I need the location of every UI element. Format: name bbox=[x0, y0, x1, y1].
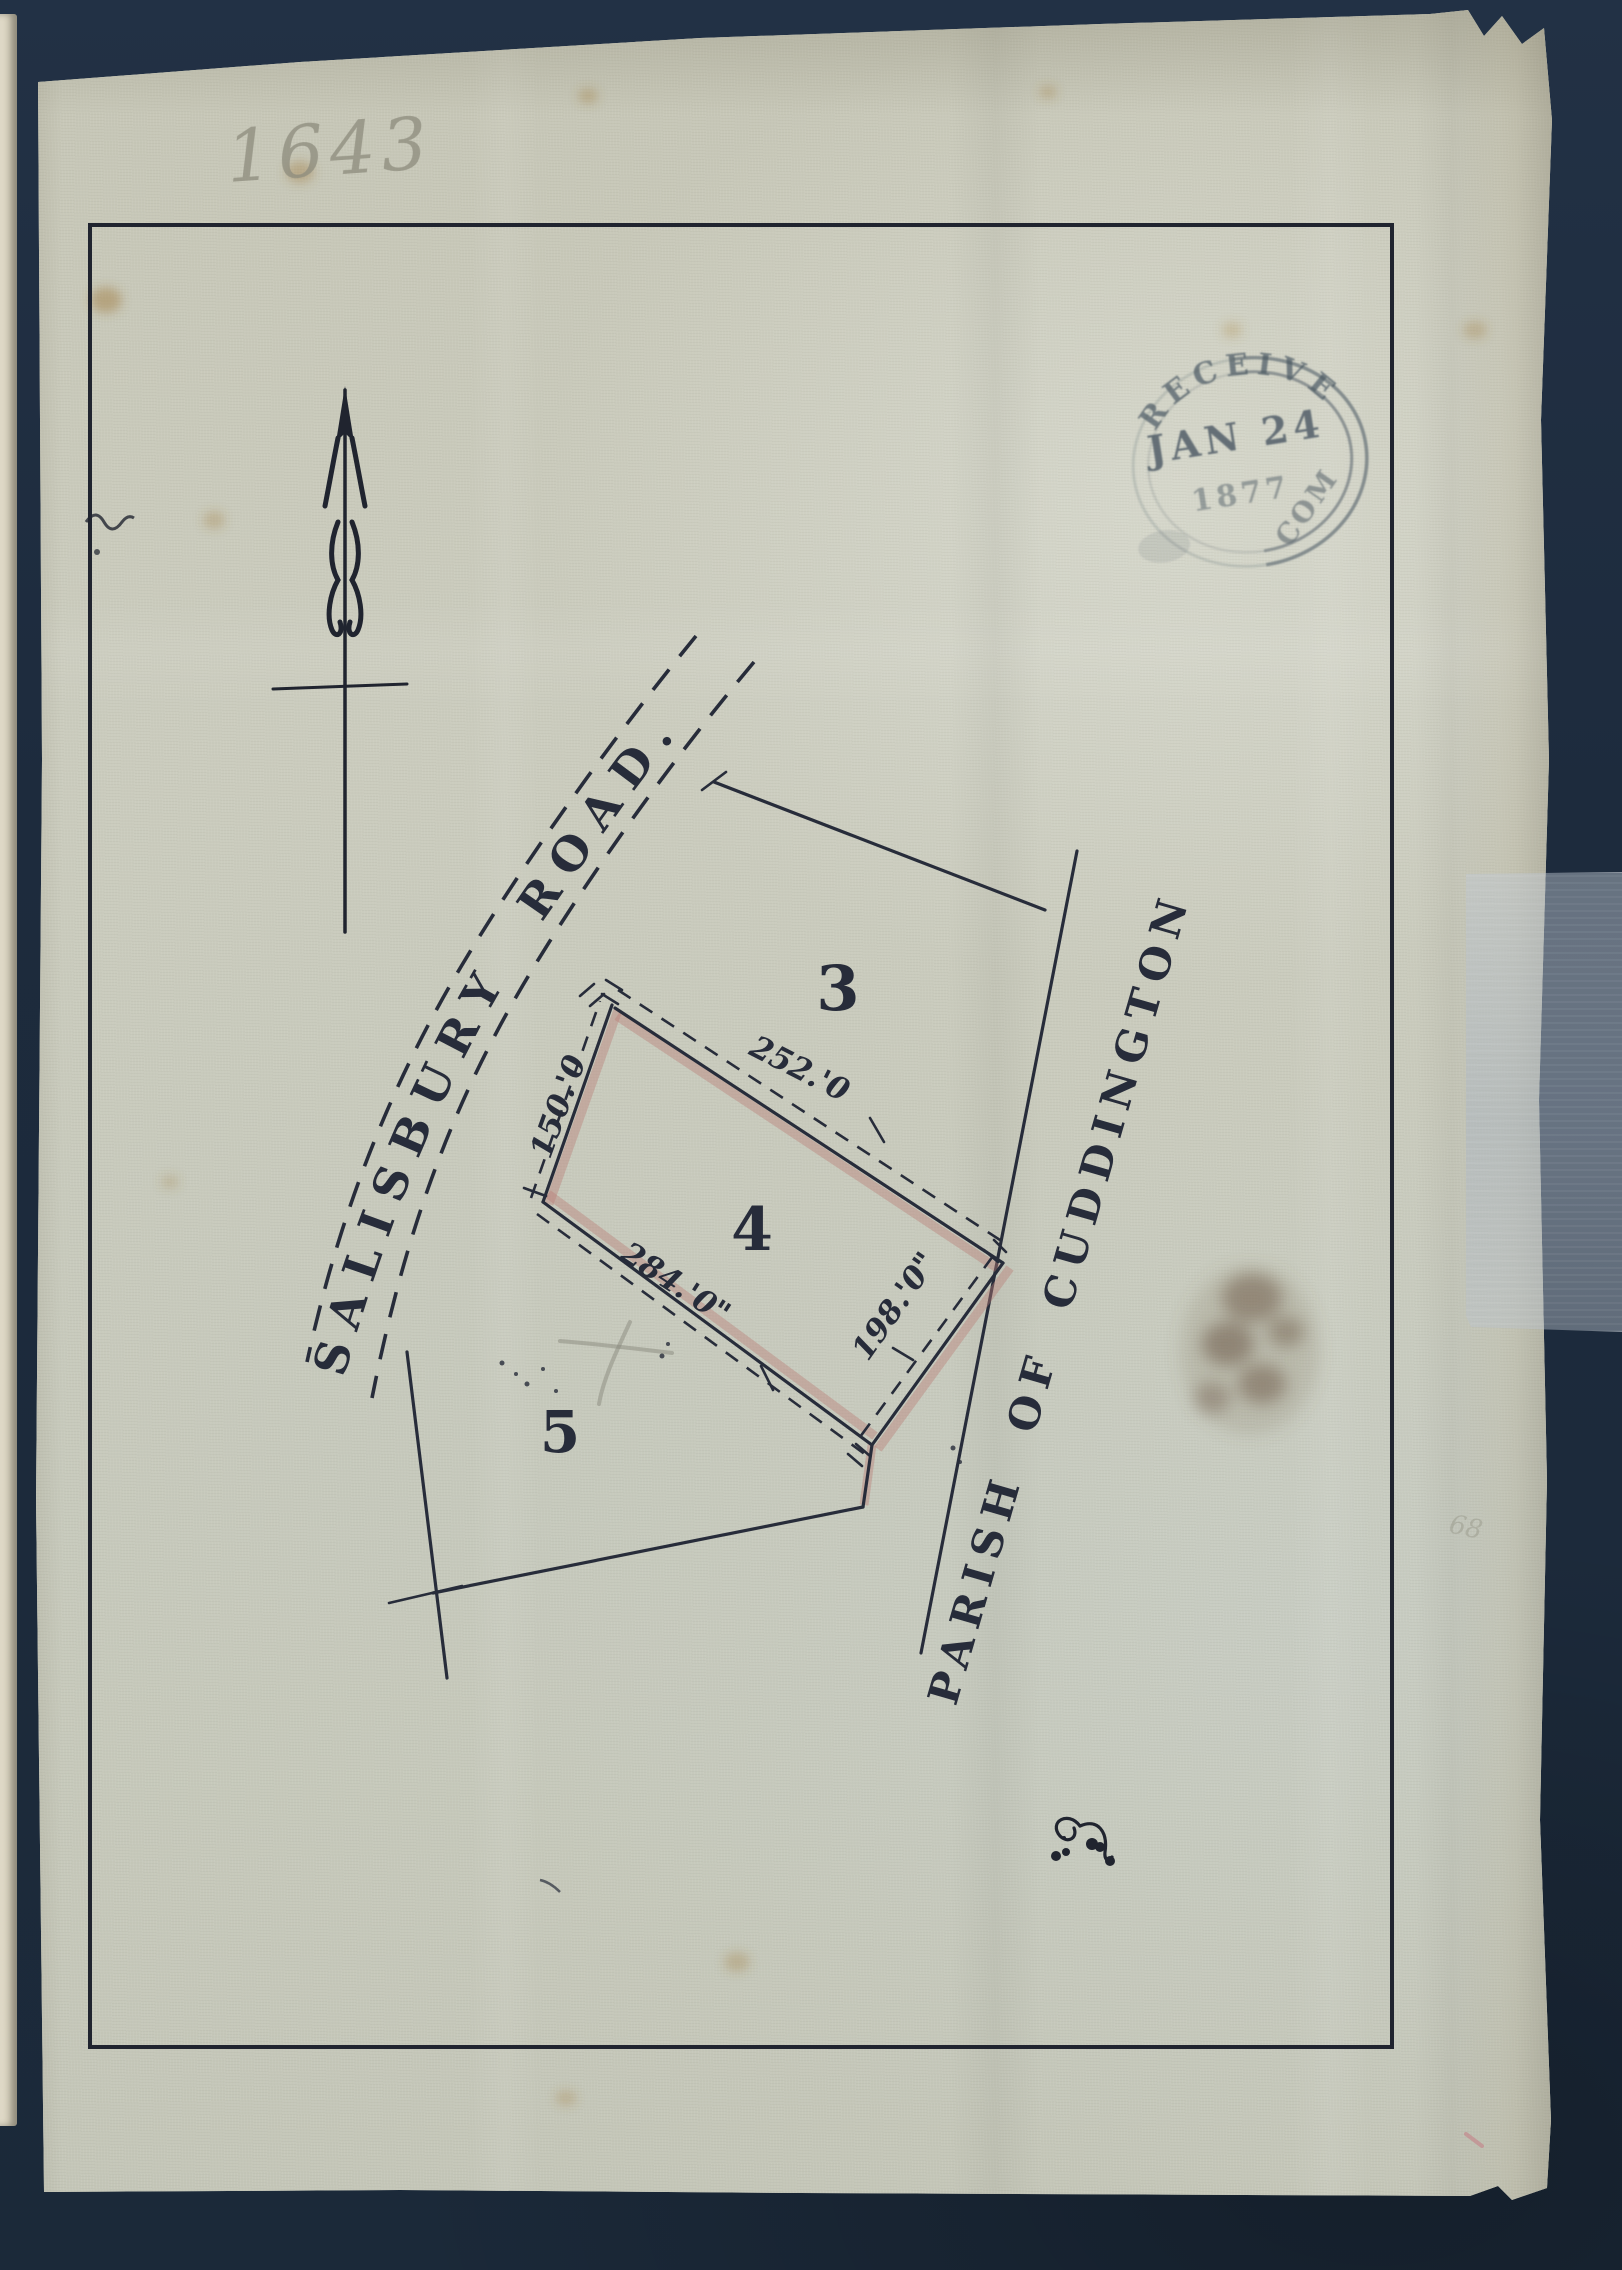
stamp-arc-top: RECEIVED bbox=[0, 0, 1350, 623]
parish-label-text: PARISH OF CUDDINGTON bbox=[918, 885, 1200, 1710]
pencil-margin-number: 68 bbox=[1447, 1510, 1486, 1546]
parish-label: PARISH OF CUDDINGTON bbox=[918, 885, 1200, 1710]
parish-boundary: PARISH OF CUDDINGTON bbox=[918, 851, 1200, 1710]
plot3-north-line bbox=[714, 782, 1045, 910]
stamp-year: 1877 bbox=[1189, 469, 1293, 519]
archival-scan: { "document": { "pencil_number": "1643",… bbox=[0, 0, 1622, 2270]
brown-blot-stain bbox=[1180, 1265, 1320, 1435]
road-label-text: SALISBURY ROAD. bbox=[302, 699, 692, 1381]
archival-tape-strip bbox=[1466, 872, 1622, 1332]
ink-blot bbox=[1051, 1818, 1115, 1866]
plot4-number: 4 bbox=[731, 1195, 773, 1265]
foxing-stains bbox=[90, 85, 1487, 2106]
pencil-archive-number: 1643 bbox=[223, 101, 436, 199]
plot5-south-line bbox=[433, 1507, 863, 1593]
plot34-divider-line bbox=[615, 1008, 1003, 1263]
plot3-number: 3 bbox=[816, 952, 859, 1025]
plot5-west-line bbox=[407, 1352, 447, 1678]
road-label: SALISBURY ROAD. bbox=[302, 699, 692, 1381]
survey-plan-drawing: SALISBURY ROAD. PARISH OF CUDDINGTON bbox=[0, 0, 1622, 2270]
dimension-north: 252.'0 bbox=[743, 1028, 856, 1109]
received-stamp: RECEIVED JAN 24 1877 COM bbox=[0, 0, 1382, 763]
north-arrow bbox=[273, 386, 407, 932]
stamp-arc-top-text: RECEIVED bbox=[0, 0, 1350, 623]
plot5-number: 5 bbox=[540, 1398, 580, 1466]
plot-boundaries bbox=[389, 772, 1045, 1678]
